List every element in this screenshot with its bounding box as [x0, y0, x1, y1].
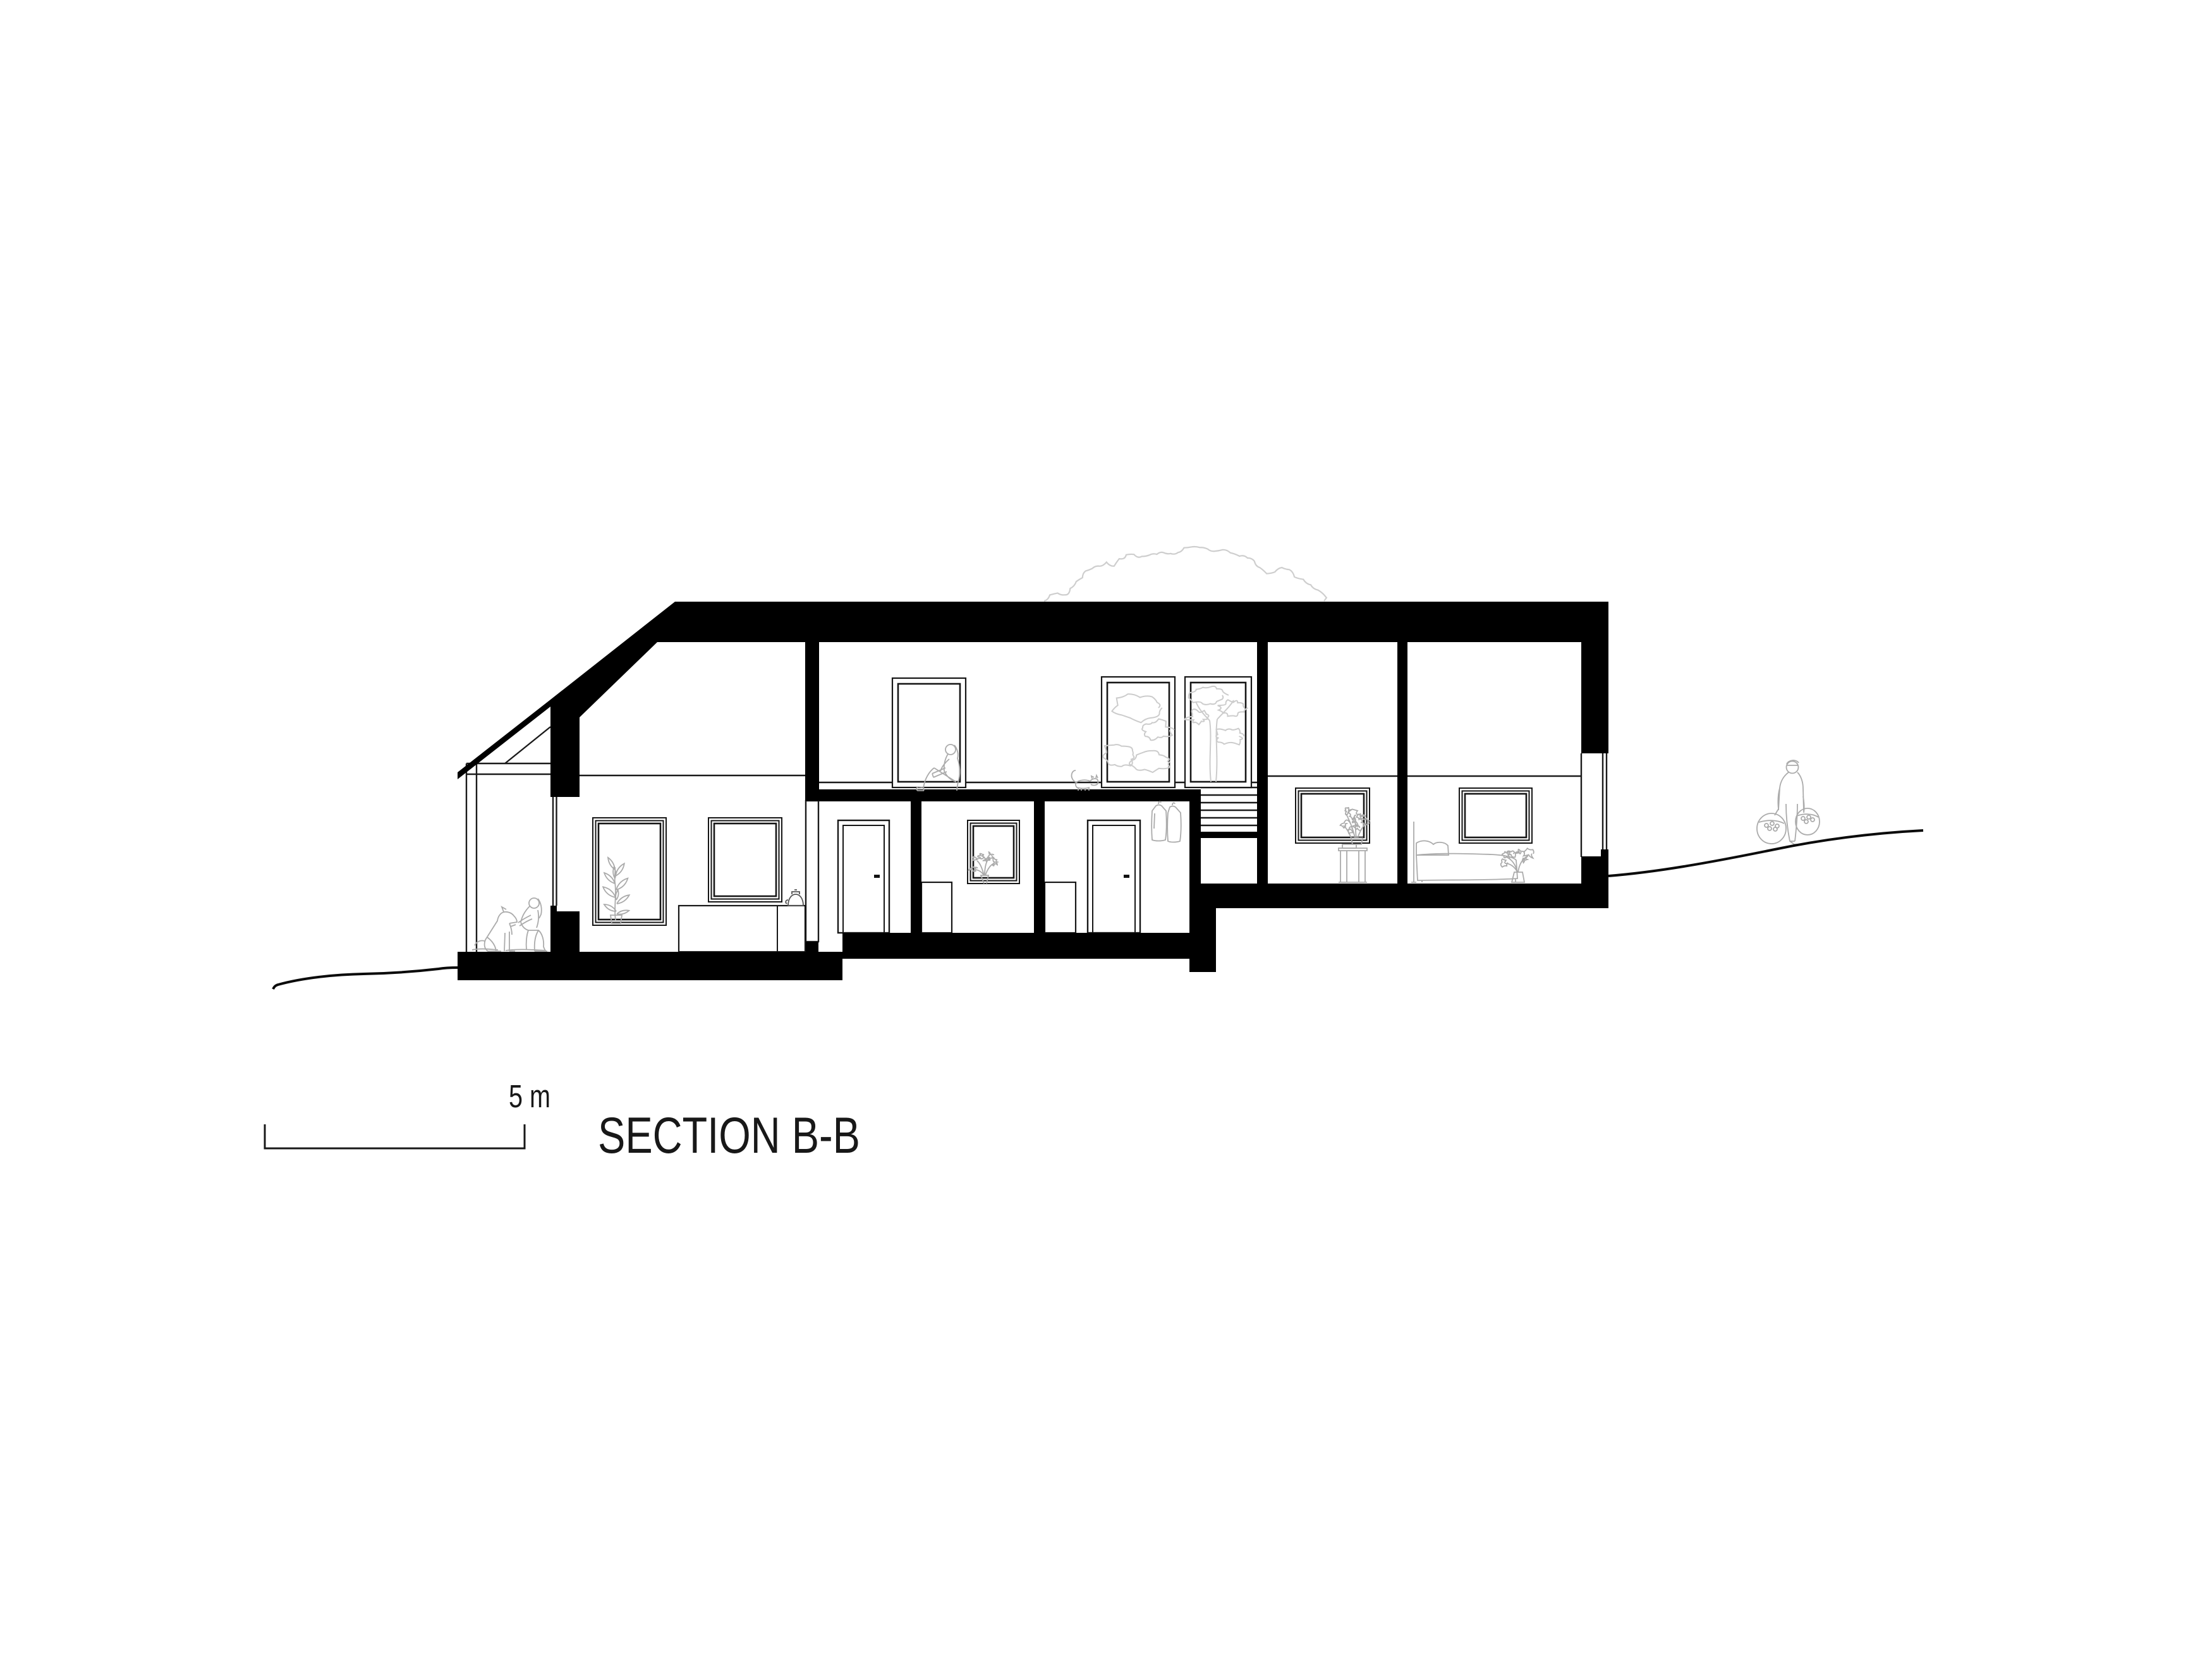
svg-text:5 m: 5 m	[509, 1078, 550, 1114]
svg-text:SECTION B-B: SECTION B-B	[598, 1107, 860, 1164]
